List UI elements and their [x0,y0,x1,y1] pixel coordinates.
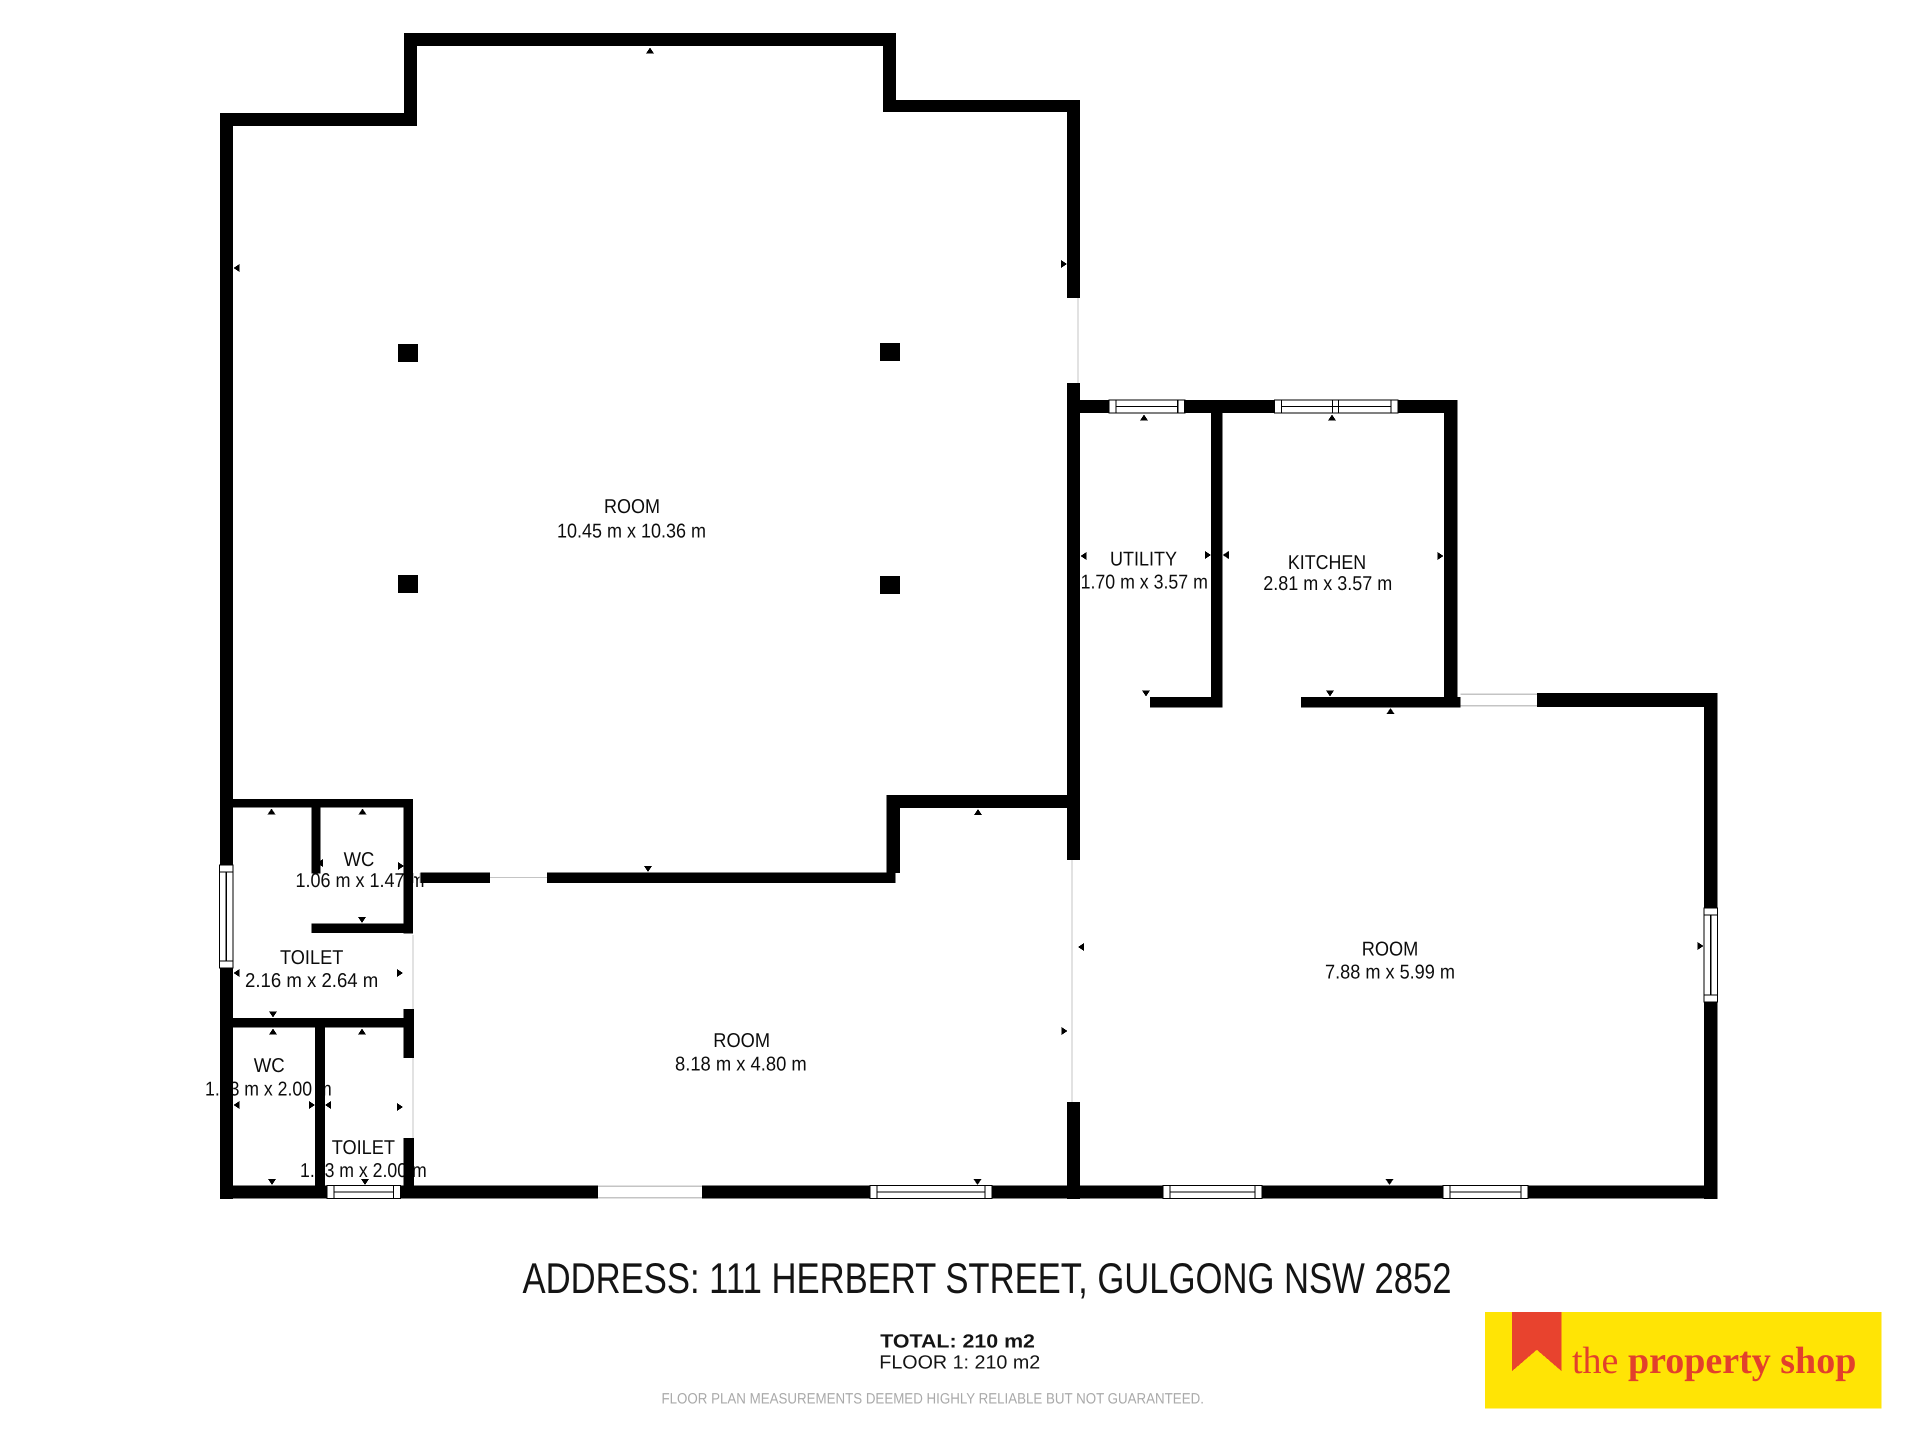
svg-text:TOTAL: 210 m2: TOTAL: 210 m2 [880,1332,1035,1353]
svg-text:1.70 m x 3.57 m: 1.70 m x 3.57 m [1081,572,1208,594]
svg-text:KITCHEN: KITCHEN [1288,552,1366,574]
svg-text:ROOM: ROOM [713,1030,770,1052]
svg-text:TOILET: TOILET [280,947,343,969]
svg-text:ROOM: ROOM [604,496,660,518]
svg-text:WC: WC [254,1055,285,1077]
svg-text:ADDRESS: 111 HERBERT STREET, G: ADDRESS: 111 HERBERT STREET, GULGONG NSW… [523,1255,1452,1303]
svg-text:FLOOR 1: 210 m2: FLOOR 1: 210 m2 [879,1352,1040,1373]
svg-text:10.45 m x 10.36 m: 10.45 m x 10.36 m [557,521,706,543]
svg-text:7.88 m x 5.99 m: 7.88 m x 5.99 m [1325,962,1455,984]
svg-text:TOILET: TOILET [332,1137,395,1159]
svg-text:2.16 m x 2.64 m: 2.16 m x 2.64 m [245,970,378,992]
svg-text:8.18 m x 4.80 m: 8.18 m x 4.80 m [675,1054,807,1076]
svg-text:2.81 m x 3.57 m: 2.81 m x 3.57 m [1263,573,1392,595]
svg-text:UTILITY: UTILITY [1110,549,1177,571]
svg-text:FLOOR PLAN MEASUREMENTS DEEMED: FLOOR PLAN MEASUREMENTS DEEMED HIGHLY RE… [662,1391,1204,1408]
svg-text:the property shop: the property shop [1572,1340,1856,1382]
svg-text:ROOM: ROOM [1362,939,1419,961]
svg-text:WC: WC [344,849,375,871]
